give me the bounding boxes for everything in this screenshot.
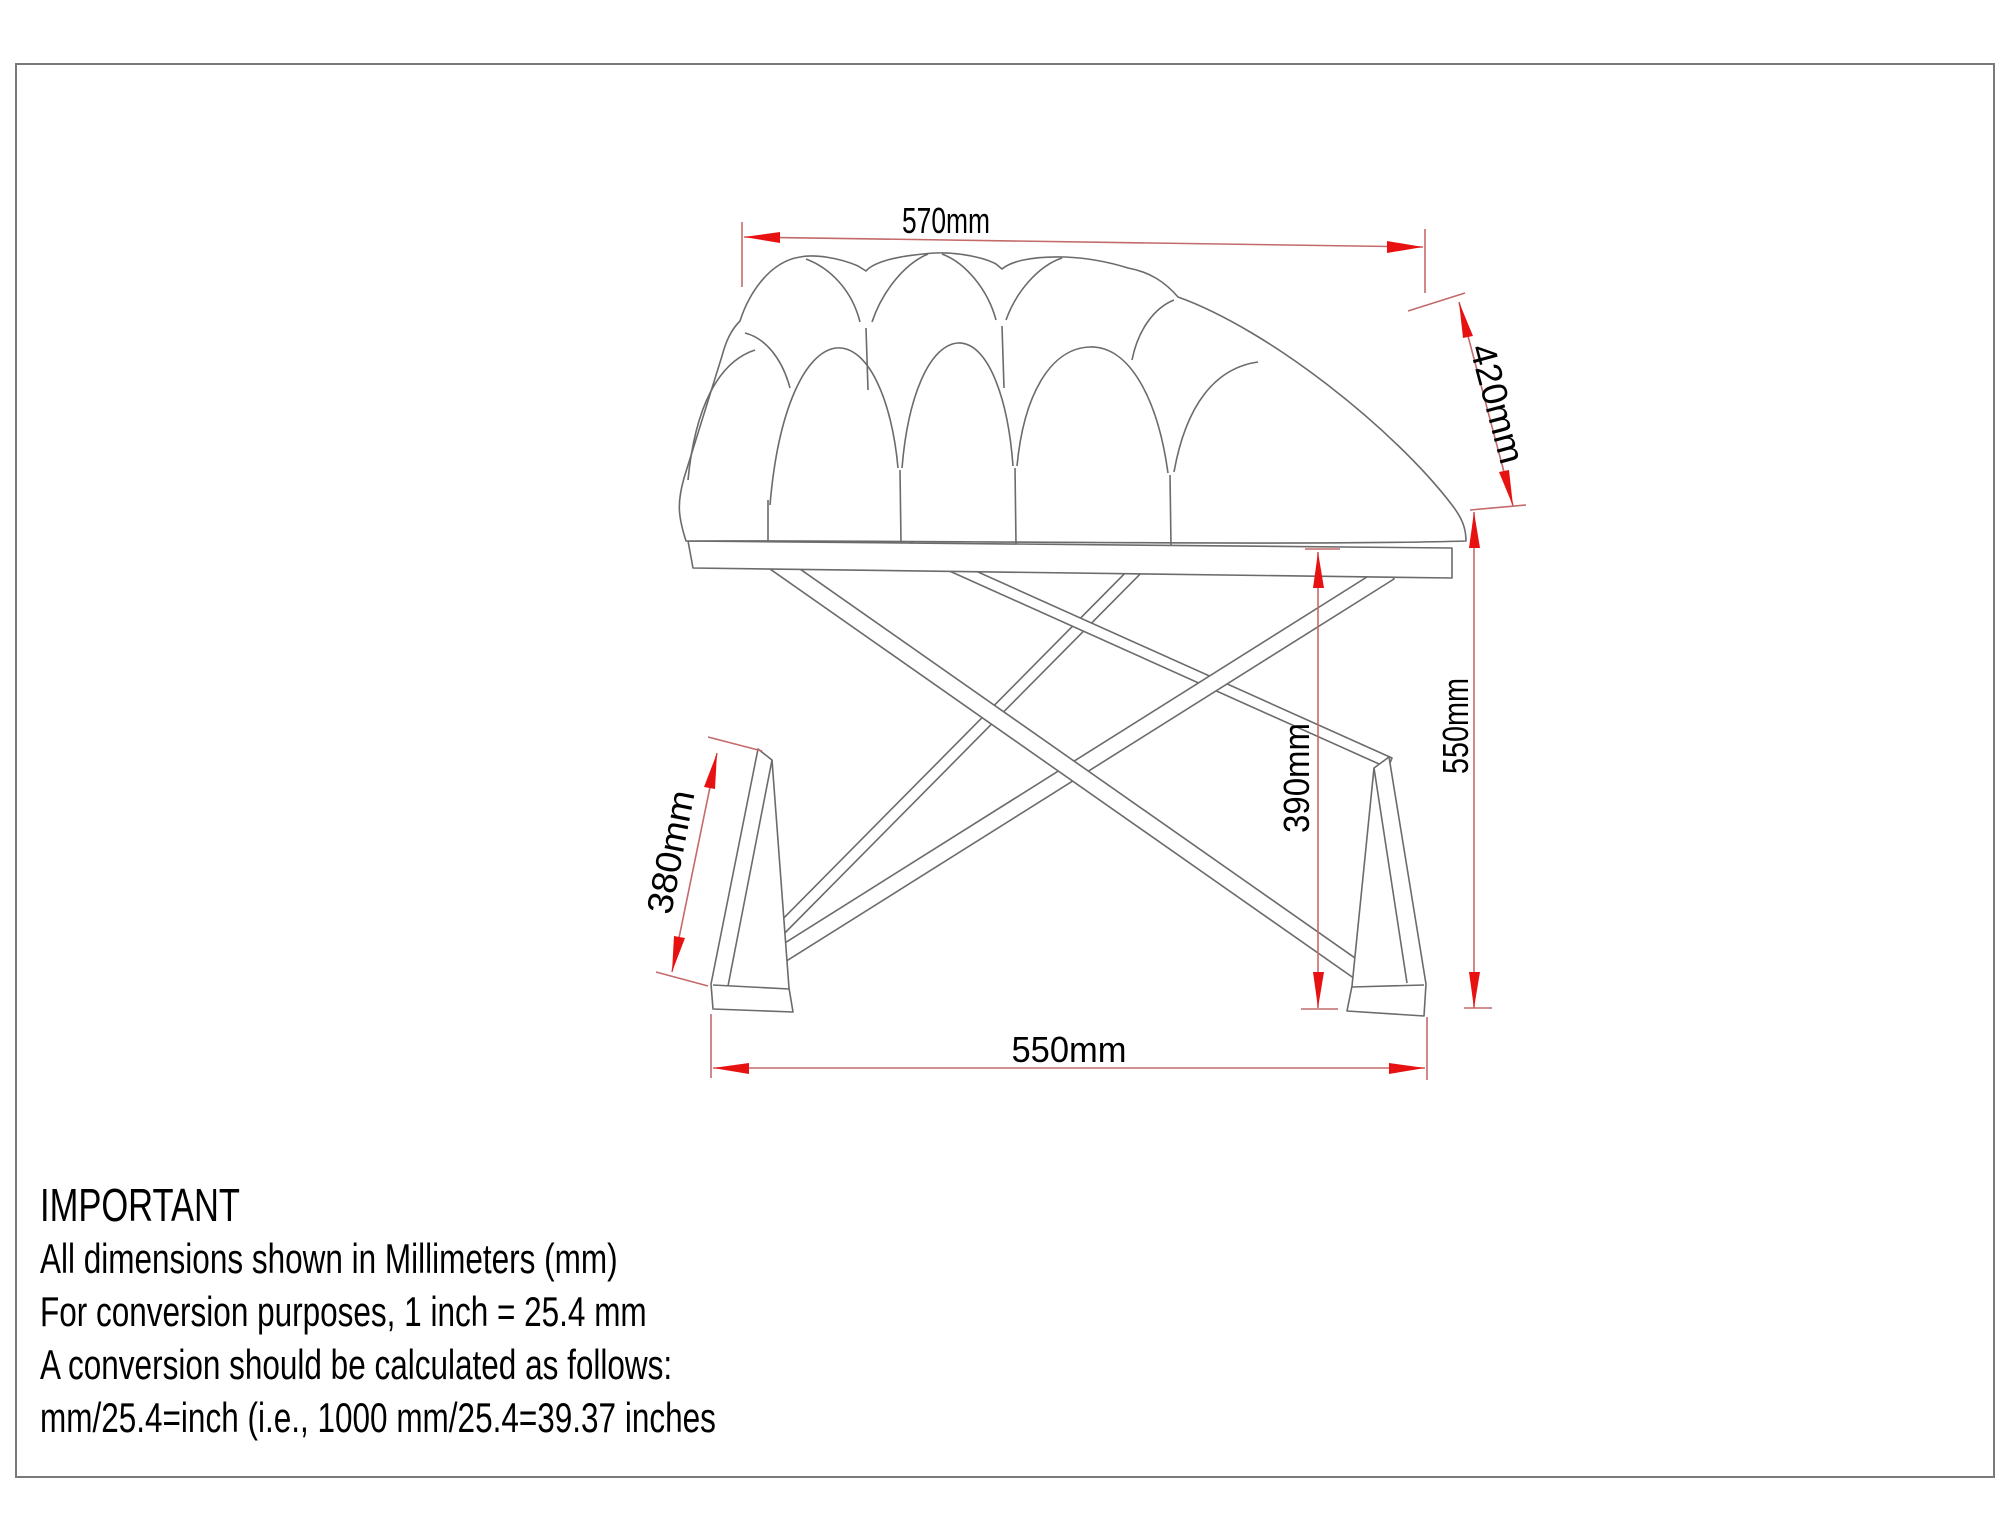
note-line: All dimensions shown in Millimeters (mm) xyxy=(40,1232,941,1285)
dim-label-seat-depth: 420mm xyxy=(1462,339,1533,467)
drawing-page: 570mm 420mm 550mm 390mm 380mm 550mm IMPO… xyxy=(0,0,2000,1535)
dim-label-base-width: 550mm xyxy=(1012,1029,1127,1070)
dimension-arrow-icon xyxy=(1459,302,1473,338)
dimension-arrow-icon xyxy=(713,1063,749,1074)
dimension-arrow-icon xyxy=(1387,241,1423,253)
note-line: A conversion should be calculated as fol… xyxy=(40,1338,941,1391)
left-foot-rail xyxy=(711,749,793,1012)
note-heading-text: IMPORTANT xyxy=(40,1178,240,1232)
note-line: For conversion purposes, 1 inch = 25.4 m… xyxy=(40,1285,941,1338)
tufted-cushion xyxy=(679,253,1466,546)
dim-label-overall-height: 550mm xyxy=(1435,678,1476,774)
note-line: mm/25.4=inch (i.e., 1000 mm/25.4=39.37 i… xyxy=(40,1391,941,1444)
dimension-arrow-icon xyxy=(672,936,685,972)
dimension-arrow-icon xyxy=(1389,1063,1425,1074)
dimension-arrow-icon xyxy=(1469,512,1480,548)
dim-label-underseat-height: 390mm xyxy=(1276,723,1317,833)
bench-drawing xyxy=(679,253,1466,1016)
dim-label-top-width: 570mm xyxy=(902,200,990,241)
right-foot-rail xyxy=(1347,757,1426,1016)
dimension-arrow-icon xyxy=(1313,972,1324,1008)
dim-label-foot-length: 380mm xyxy=(638,787,702,918)
dimension-arrow-icon xyxy=(744,232,780,243)
important-note: IMPORTANT All dimensions shown in Millim… xyxy=(40,1178,941,1444)
dimension-arrow-icon xyxy=(1499,470,1513,506)
dimension-arrow-icon xyxy=(704,753,717,789)
note-heading: IMPORTANT xyxy=(40,1178,941,1232)
dimension-arrow-icon xyxy=(1469,972,1480,1008)
